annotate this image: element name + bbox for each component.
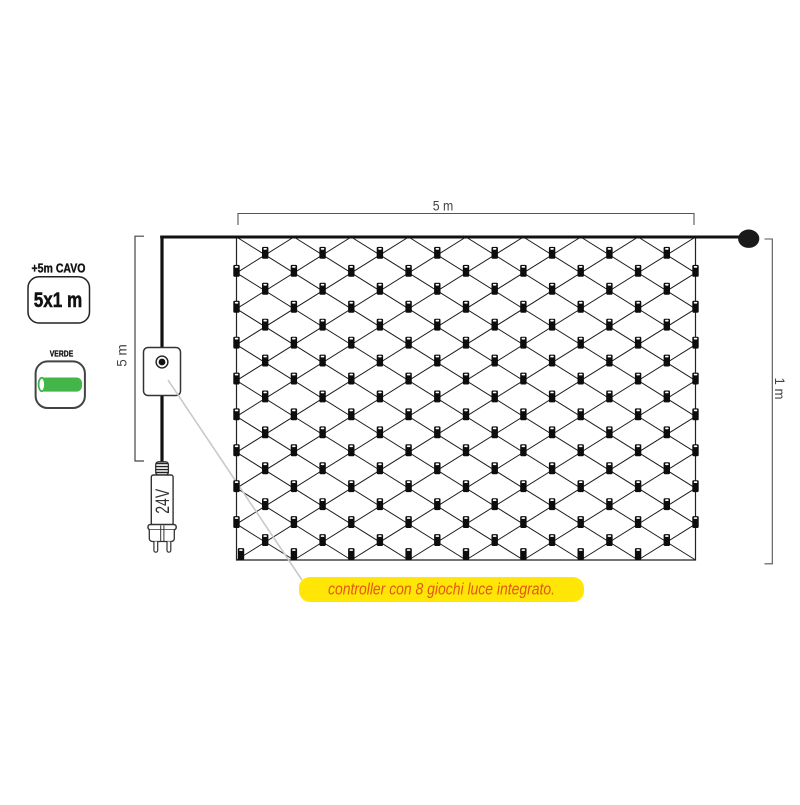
svg-text:controller con 8 giochi luce i: controller con 8 giochi luce integrato.	[328, 581, 555, 599]
svg-text:5 m: 5 m	[433, 198, 454, 214]
svg-text:VERDE: VERDE	[50, 349, 74, 359]
svg-text:5 m: 5 m	[113, 344, 129, 367]
svg-text:5x1 m: 5x1 m	[34, 289, 83, 312]
svg-text:+5m CAVO: +5m CAVO	[32, 262, 86, 276]
svg-text:1 m: 1 m	[772, 378, 788, 400]
svg-text:24V: 24V	[153, 489, 174, 514]
